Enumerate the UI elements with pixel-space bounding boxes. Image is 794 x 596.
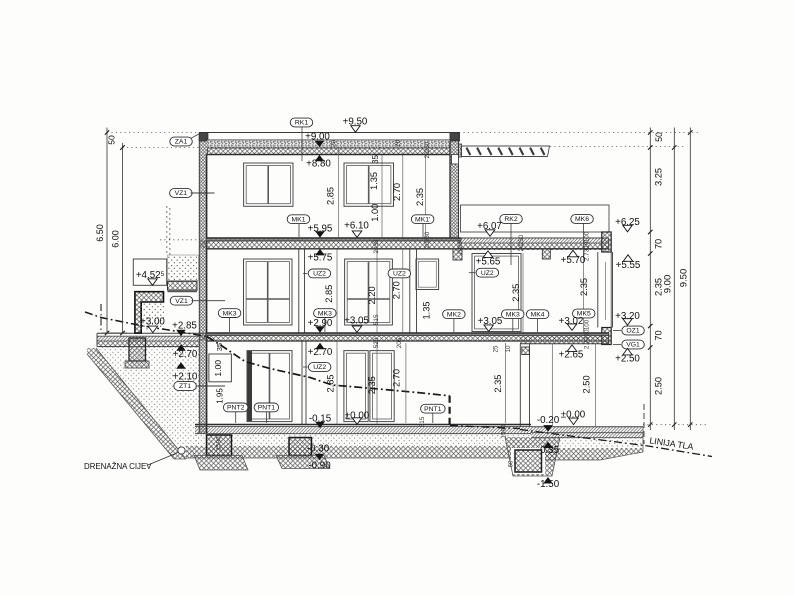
- svg-text:90: 90: [216, 436, 223, 444]
- svg-text:2.35: 2.35: [579, 278, 589, 296]
- svg-text:-0.90: -0.90: [308, 461, 331, 472]
- svg-text:50: 50: [107, 135, 117, 145]
- svg-text:520: 520: [373, 337, 380, 348]
- svg-text:1.00: 1.00: [213, 360, 223, 377]
- svg-text:MK4: MK4: [531, 311, 545, 318]
- svg-text:2.85: 2.85: [326, 187, 336, 205]
- svg-text:MK3: MK3: [318, 310, 332, 317]
- svg-text:2.35: 2.35: [493, 375, 503, 393]
- svg-text:PNT1: PNT1: [424, 406, 442, 413]
- svg-text:2.35: 2.35: [415, 188, 425, 206]
- svg-text:VG1: VG1: [626, 342, 640, 349]
- svg-text:9.50: 9.50: [679, 269, 690, 288]
- svg-text:515: 515: [373, 314, 380, 325]
- svg-text:-0.30: -0.30: [307, 444, 330, 455]
- svg-text:2.85: 2.85: [324, 285, 334, 303]
- svg-text:PNT1: PNT1: [258, 405, 276, 412]
- svg-text:25: 25: [493, 345, 500, 353]
- svg-text:MK3: MK3: [506, 311, 520, 318]
- svg-text:+5.65: +5.65: [476, 257, 501, 268]
- svg-text:100: 100: [584, 231, 591, 242]
- svg-text:20: 20: [424, 241, 431, 249]
- svg-text:+3.05: +3.05: [344, 316, 369, 327]
- svg-text:6.50: 6.50: [95, 224, 105, 242]
- svg-text:RK2: RK2: [504, 216, 517, 223]
- svg-text:1.35: 1.35: [369, 172, 379, 190]
- svg-text:2.70: 2.70: [392, 369, 402, 387]
- svg-text:ZA1: ZA1: [175, 139, 188, 146]
- svg-text:MK6: MK6: [575, 216, 589, 223]
- svg-text:+6.10: +6.10: [344, 221, 369, 232]
- svg-text:2.35: 2.35: [367, 376, 377, 394]
- svg-text:ZT1: ZT1: [179, 383, 191, 390]
- svg-text:UZ2: UZ2: [393, 271, 406, 278]
- svg-text:20: 20: [373, 246, 380, 254]
- svg-text:9.00: 9.00: [663, 275, 674, 294]
- svg-text:100: 100: [584, 319, 591, 330]
- svg-text:2.70: 2.70: [391, 281, 401, 299]
- svg-text:35: 35: [373, 239, 380, 247]
- svg-text:90: 90: [501, 424, 508, 432]
- svg-text:VZ1: VZ1: [175, 298, 188, 305]
- svg-text:70: 70: [654, 239, 664, 249]
- svg-text:20: 20: [457, 247, 464, 255]
- svg-text:1.00: 1.00: [370, 204, 380, 222]
- svg-text:250: 250: [518, 234, 525, 245]
- svg-text:2.20: 2.20: [367, 286, 377, 304]
- svg-text:50: 50: [654, 132, 664, 142]
- svg-text:1.95: 1.95: [215, 388, 224, 404]
- svg-text:3.25: 3.25: [654, 168, 664, 186]
- svg-text:20: 20: [518, 244, 525, 252]
- svg-text:UZ2: UZ2: [481, 270, 494, 277]
- svg-text:20: 20: [394, 140, 401, 148]
- svg-text:250: 250: [424, 141, 431, 152]
- svg-text:250: 250: [457, 237, 464, 248]
- svg-text:MK3: MK3: [223, 310, 237, 317]
- svg-text:6.00: 6.00: [111, 230, 121, 248]
- svg-text:DRENAŽNA CIJEV: DRENAŽNA CIJEV: [84, 462, 152, 471]
- svg-text:10: 10: [584, 241, 591, 249]
- svg-text:10: 10: [505, 345, 512, 353]
- svg-text:205: 205: [396, 337, 403, 348]
- svg-text:RK1: RK1: [295, 120, 308, 127]
- svg-text:35: 35: [371, 155, 380, 164]
- svg-text:PNT2: PNT2: [227, 405, 245, 412]
- svg-text:MK2: MK2: [447, 311, 461, 318]
- svg-text:35: 35: [215, 343, 224, 351]
- svg-text:70: 70: [654, 330, 664, 340]
- svg-text:515: 515: [419, 416, 426, 427]
- svg-text:VZ1: VZ1: [175, 190, 188, 197]
- svg-text:15: 15: [216, 443, 223, 451]
- svg-text:2.50: 2.50: [654, 377, 664, 395]
- svg-text:2.70: 2.70: [392, 183, 402, 201]
- svg-text:250: 250: [424, 231, 431, 242]
- svg-text:OZ1: OZ1: [626, 328, 639, 335]
- svg-text:60: 60: [508, 460, 515, 468]
- svg-text:2.50: 2.50: [582, 375, 592, 393]
- svg-text:UZ2: UZ2: [313, 271, 326, 278]
- svg-text:2.35: 2.35: [511, 284, 521, 302]
- svg-text:2.85: 2.85: [326, 374, 336, 392]
- svg-text:MK1': MK1': [415, 216, 430, 223]
- svg-text:+2.10: +2.10: [173, 372, 198, 383]
- svg-text:UZ2: UZ2: [313, 364, 326, 371]
- svg-text:10: 10: [584, 329, 591, 337]
- svg-text:-0.20: -0.20: [537, 415, 560, 426]
- svg-text:20: 20: [424, 151, 431, 159]
- svg-text:15: 15: [501, 431, 508, 439]
- svg-text:2.73: 2.73: [584, 336, 591, 349]
- svg-text:MK1: MK1: [292, 216, 306, 223]
- svg-text:20: 20: [330, 140, 337, 148]
- svg-text:1.35: 1.35: [421, 301, 431, 319]
